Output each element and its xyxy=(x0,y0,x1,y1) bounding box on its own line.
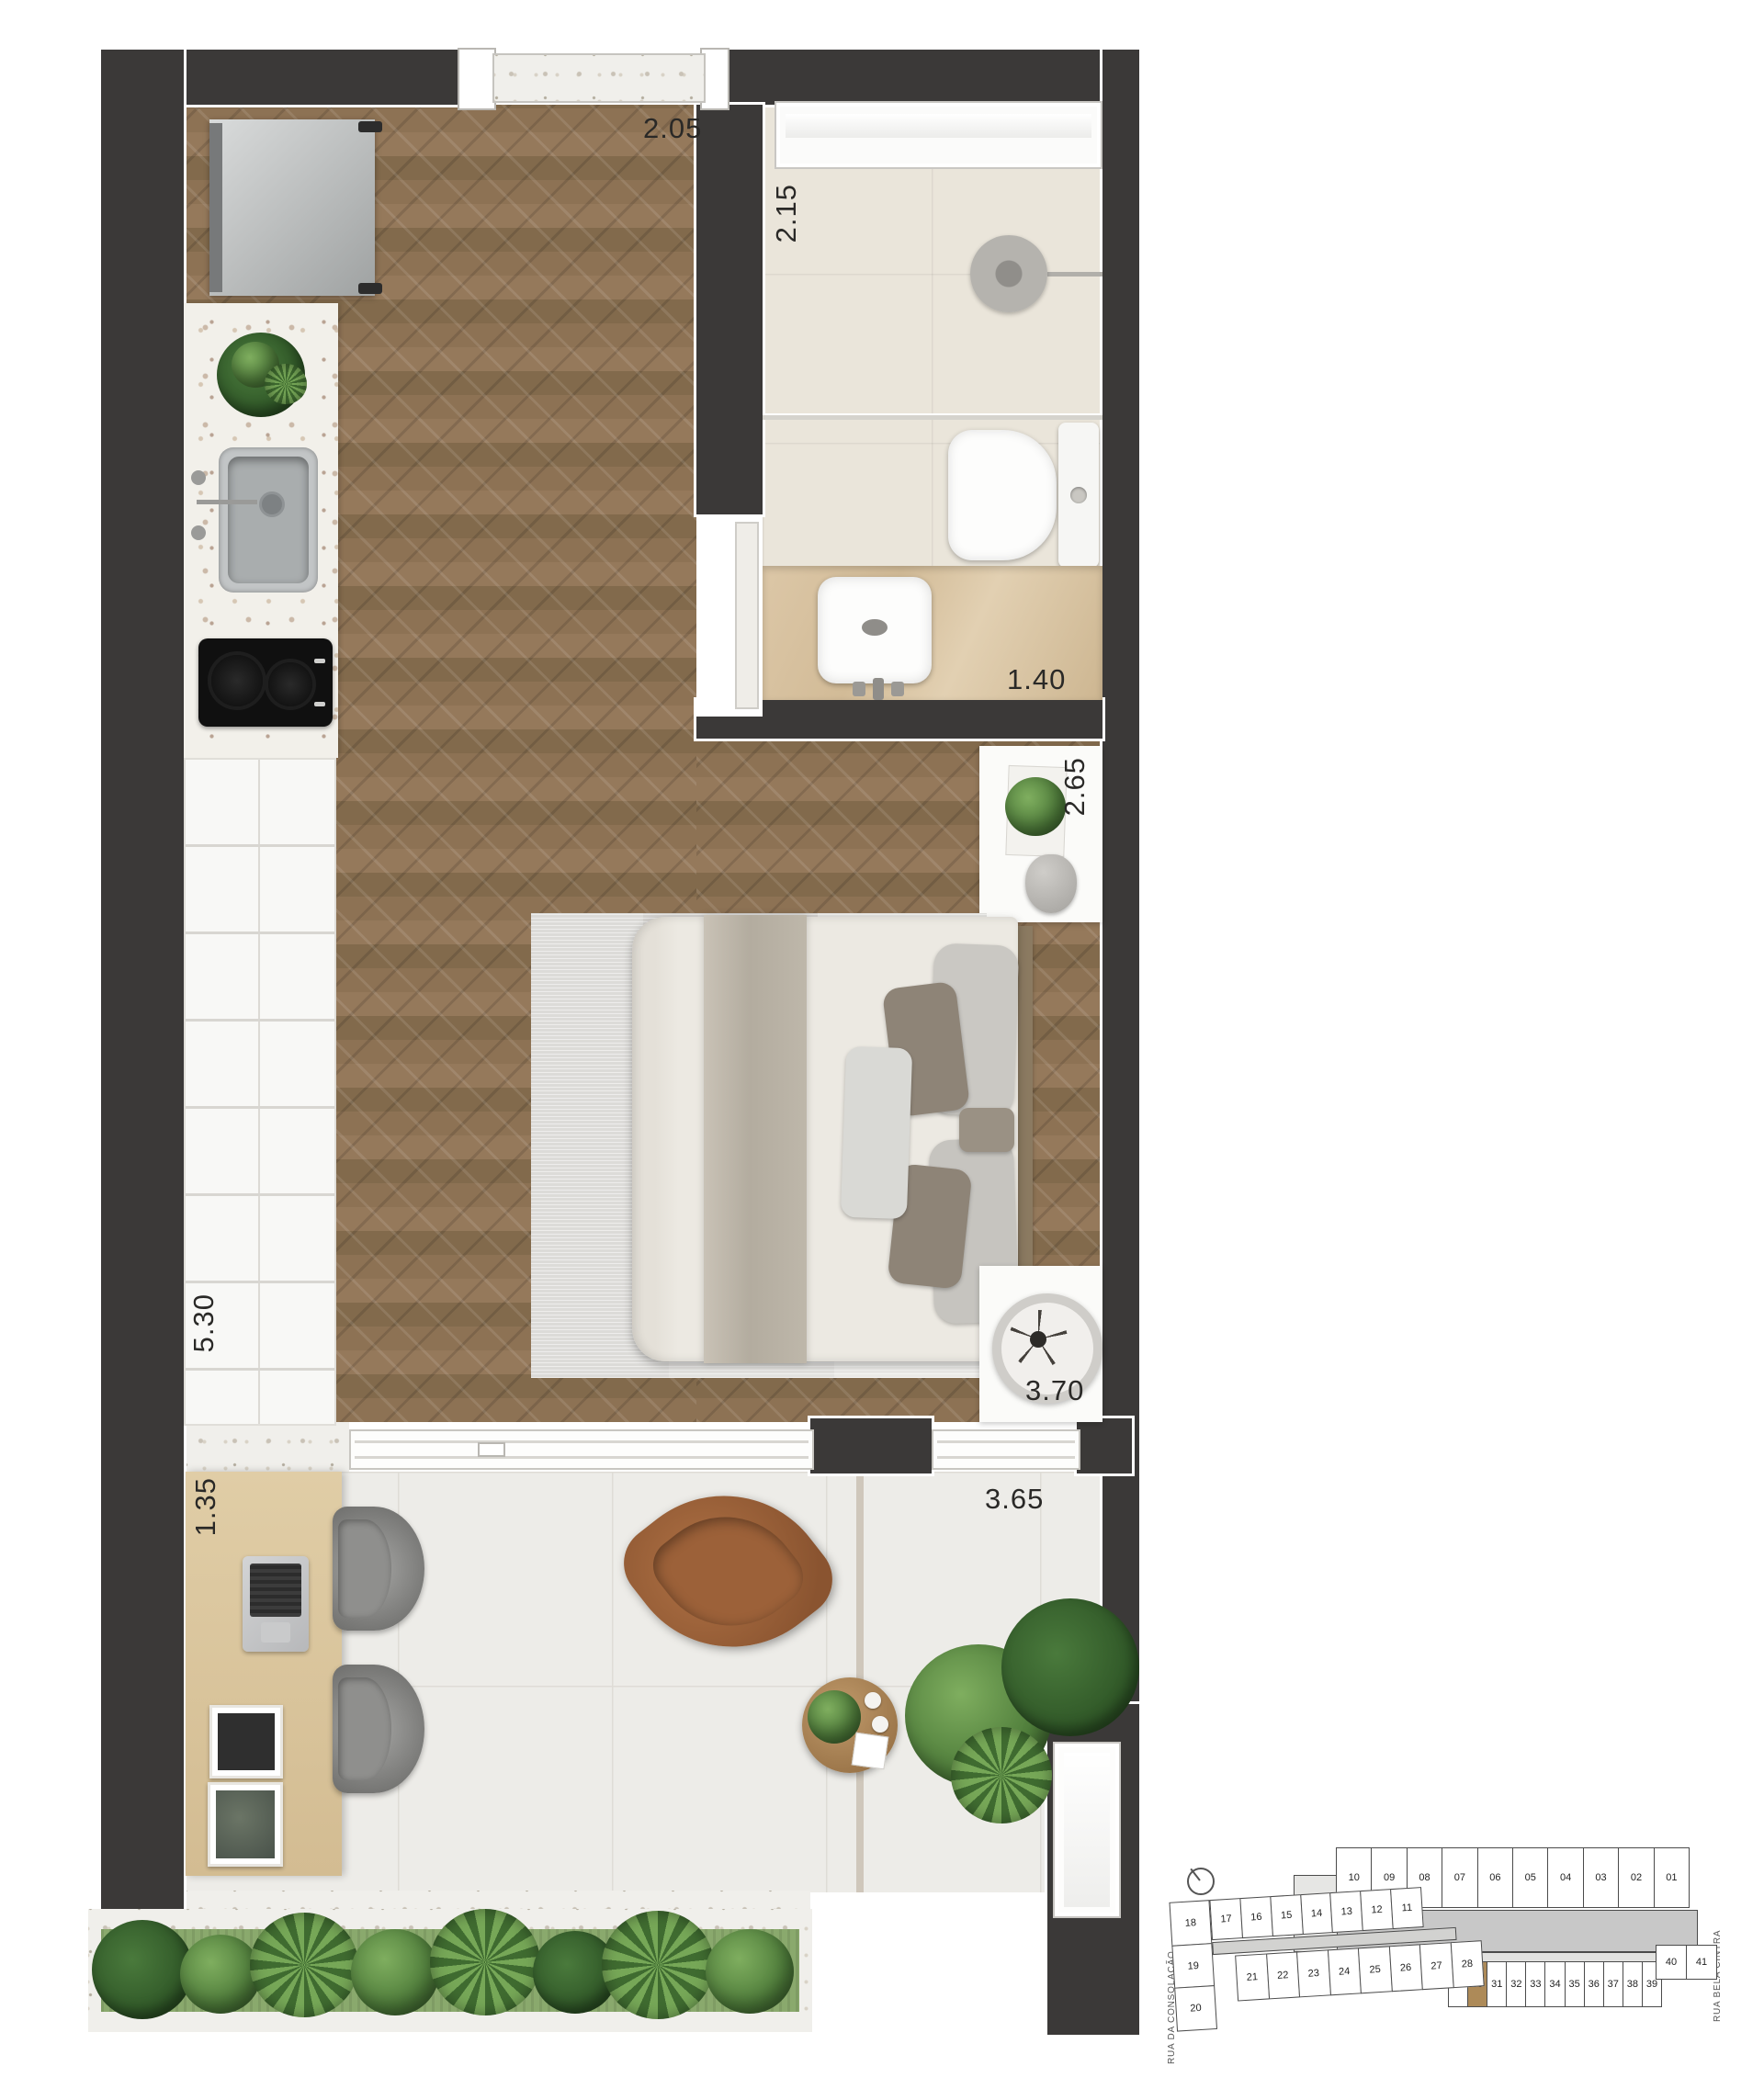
vanity-faucet-handle-left xyxy=(853,682,865,696)
floor-plan-page: 2.05 5.30 2.15 xyxy=(0,0,1764,2100)
coffee-table-plant xyxy=(808,1690,861,1744)
cooktop-knob-1 xyxy=(314,659,325,663)
keyplan-unit-06: 06 xyxy=(1477,1847,1513,1908)
wall-left xyxy=(101,50,184,1909)
bathroom-window-pane xyxy=(786,114,1091,138)
laptop-keyboard xyxy=(250,1564,301,1617)
garden-plant-3 xyxy=(250,1913,358,2017)
keyplan: RUA DA CONSOLAÇÃO RUA BELA CINTRA 100908… xyxy=(1156,1823,1744,2072)
laptop-trackpad xyxy=(261,1622,290,1643)
keyplan-unit-01: 01 xyxy=(1654,1847,1690,1908)
keyplan-unit-38: 38 xyxy=(1623,1961,1643,2007)
vanity-faucet-spout xyxy=(873,678,884,700)
keyplan-unit-28: 28 xyxy=(1450,1940,1484,1988)
fridge-handle-top xyxy=(358,121,382,132)
toilet-tank xyxy=(1058,423,1099,568)
keyplan-unit-21: 21 xyxy=(1235,1953,1269,2001)
garden-plant-5 xyxy=(430,1909,540,2015)
keyplan-unit-35: 35 xyxy=(1565,1961,1585,2007)
keyplan-unit-41: 41 xyxy=(1686,1945,1717,1980)
kitchen-faucet-spout xyxy=(197,500,257,504)
kitchen-faucet-knob-1 xyxy=(191,470,206,485)
fridge-handle-bottom xyxy=(358,283,382,294)
keyplan-left-block: 17161514131211 181920 2122232425262728 xyxy=(1167,1876,1487,2041)
side-window-pane xyxy=(1064,1753,1110,1907)
toilet-bowl xyxy=(948,430,1057,560)
keyplan-unit-17: 17 xyxy=(1209,1898,1242,1940)
vanity-faucet-handle-right xyxy=(891,682,904,696)
coffee-table-cup-1 xyxy=(865,1692,881,1709)
cooktop-burner-left xyxy=(211,655,263,706)
keyplan-unit-04: 04 xyxy=(1547,1847,1583,1908)
kitchen-sink-basin xyxy=(228,457,309,583)
side-window xyxy=(1055,1744,1119,1916)
keyplan-unit-24: 24 xyxy=(1327,1948,1361,1995)
keyplan-unit-26: 26 xyxy=(1388,1944,1422,1992)
kitchen-sink-drain xyxy=(259,491,285,517)
coffee-table-book xyxy=(852,1733,889,1770)
keyplan-unit-37: 37 xyxy=(1603,1961,1623,2007)
garden-plant-8 xyxy=(706,1929,794,2014)
toilet-flush-button xyxy=(1070,487,1087,503)
kitchen-sink xyxy=(219,447,318,593)
cooktop-burner-right xyxy=(268,662,312,706)
fridge xyxy=(209,119,375,296)
pillow-bolster xyxy=(959,1108,1014,1152)
shower-glass-partition xyxy=(763,415,1102,420)
garden-plant-2 xyxy=(180,1935,261,2014)
dim-bedroom-length: 3.70 xyxy=(1025,1374,1084,1407)
wall-terrace-pier xyxy=(810,1418,932,1473)
keyplan-unit-20: 20 xyxy=(1174,1985,1217,2031)
keyplan-unit-23: 23 xyxy=(1296,1949,1330,1997)
keyplan-left-column: 181920 xyxy=(1169,1900,1216,2030)
keyplan-unit-13: 13 xyxy=(1330,1891,1363,1933)
shower-head xyxy=(970,235,1047,312)
keyplan-unit-31: 31 xyxy=(1487,1961,1507,2007)
shower-arm xyxy=(1047,272,1102,277)
keyplan-unit-32: 32 xyxy=(1506,1961,1526,2007)
desk-magazine-1-cover xyxy=(218,1713,275,1770)
bathroom-sink xyxy=(818,577,932,683)
keyplan-row-right: 4041 xyxy=(1656,1945,1716,1980)
keyplan-unit-33: 33 xyxy=(1525,1961,1545,2007)
keyplan-unit-03: 03 xyxy=(1583,1847,1619,1908)
desk-magazine-2-cover xyxy=(216,1790,275,1858)
desk-magazine-2 xyxy=(208,1782,283,1867)
keyplan-unit-27: 27 xyxy=(1419,1942,1453,1990)
terrace-sliding-door-left xyxy=(349,1429,814,1470)
sliding-door-handle-1 xyxy=(478,1442,505,1457)
wall-top-right xyxy=(724,50,1132,105)
bathroom-door-opening xyxy=(696,514,763,717)
pillow-accent xyxy=(841,1046,912,1219)
dim-vanity-width: 1.40 xyxy=(1007,663,1066,696)
entry-door-frame-left xyxy=(458,48,496,110)
nightstand-hub xyxy=(1030,1331,1046,1348)
keyplan-unit-05: 05 xyxy=(1512,1847,1548,1908)
laptop xyxy=(243,1556,309,1652)
terrace-plant-fern xyxy=(1001,1598,1139,1736)
dim-bathroom-width: 2.15 xyxy=(770,184,803,243)
terrace-sliding-door-right xyxy=(932,1429,1080,1470)
coffee-table-cup-2 xyxy=(872,1716,888,1733)
kitchen-faucet-knob-2 xyxy=(191,525,206,540)
dim-bedroom-width: 2.65 xyxy=(1058,757,1091,816)
counter-plant-succulent xyxy=(265,364,307,404)
keyplan-unit-40: 40 xyxy=(1656,1945,1687,1980)
dim-closet-run: 5.30 xyxy=(187,1293,220,1352)
entry-sliding-door xyxy=(492,53,706,103)
keyplan-unit-34: 34 xyxy=(1544,1961,1565,2007)
garden-plant-4 xyxy=(351,1929,439,2015)
cooktop xyxy=(198,638,333,727)
wall-terrace-right-stub xyxy=(1077,1418,1132,1473)
keyplan-unit-15: 15 xyxy=(1270,1894,1303,1936)
dim-desk-width: 1.35 xyxy=(189,1477,222,1536)
keyplan-unit-36: 36 xyxy=(1584,1961,1604,2007)
bedside-vase xyxy=(1025,854,1077,913)
wall-bathroom-partition xyxy=(696,105,763,514)
keyplan-unit-16: 16 xyxy=(1239,1896,1272,1938)
fridge-hinge-strip xyxy=(209,123,222,292)
coffee-table xyxy=(802,1677,898,1773)
keyplan-unit-12: 12 xyxy=(1360,1889,1393,1931)
north-arrow-icon xyxy=(1187,1868,1215,1895)
bathroom-sink-drain xyxy=(862,619,888,636)
terrace-plant-spiky xyxy=(951,1727,1052,1823)
garden-plant-7 xyxy=(602,1911,714,2019)
bathroom-window xyxy=(776,103,1101,167)
threshold-strip xyxy=(184,1422,349,1472)
keyplan-unit-22: 22 xyxy=(1266,1951,1300,1999)
dim-terrace-width: 3.65 xyxy=(985,1483,1044,1516)
north-arrow-needle xyxy=(1190,1869,1200,1881)
desk-magazine-1 xyxy=(209,1705,283,1778)
keyplan-unit-14: 14 xyxy=(1300,1892,1333,1935)
keyplan-unit-02: 02 xyxy=(1618,1847,1654,1908)
bedside-plant xyxy=(1005,777,1066,836)
bed-runner-blanket xyxy=(704,915,807,1363)
dim-entry-width: 2.05 xyxy=(643,112,702,145)
keyplan-unit-19: 19 xyxy=(1171,1943,1215,1989)
keyplan-unit-11: 11 xyxy=(1390,1887,1423,1929)
cooktop-knob-2 xyxy=(314,702,325,706)
garden-plant-1 xyxy=(92,1920,193,2019)
keyplan-unit-18: 18 xyxy=(1169,1900,1212,1946)
keyplan-unit-25: 25 xyxy=(1358,1946,1392,1993)
bathroom-sliding-door xyxy=(735,522,759,709)
